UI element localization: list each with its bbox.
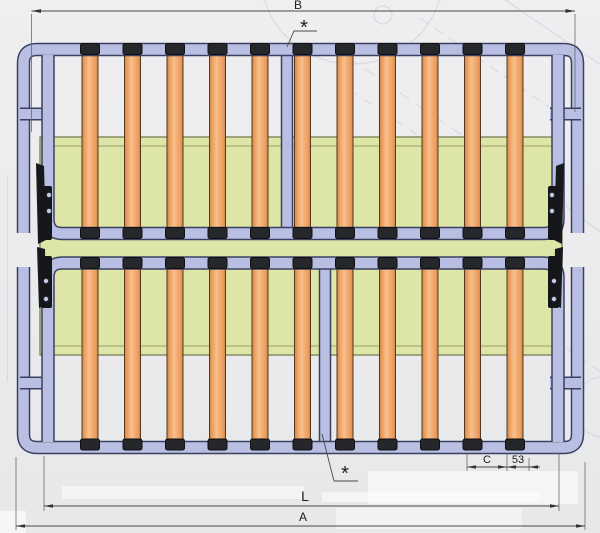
dimension-l-label: L — [301, 488, 309, 504]
hinge-left-bottom — [37, 247, 52, 308]
dimension-b-label: B — [294, 0, 302, 12]
asterisk-top-label: * — [300, 17, 308, 39]
slat — [295, 46, 311, 236]
slat — [337, 260, 353, 450]
drawing-canvas: B * * C 53 L A — [0, 0, 600, 533]
slat — [210, 260, 226, 450]
slat — [125, 260, 141, 450]
slat — [82, 46, 98, 236]
screw-icon — [549, 192, 554, 197]
dimension-c-label: C — [483, 454, 491, 466]
slat — [295, 260, 311, 450]
dimension-a-label: A — [299, 510, 307, 524]
screw-icon — [551, 278, 556, 283]
slat — [167, 46, 183, 236]
slat — [380, 46, 396, 236]
slat — [380, 260, 396, 450]
slat — [507, 260, 523, 450]
screw-icon — [46, 192, 51, 197]
slat — [82, 260, 98, 450]
screw-icon — [43, 296, 48, 301]
slat — [465, 46, 481, 236]
slat — [507, 46, 523, 236]
asterisk-bottom-label: * — [341, 463, 349, 485]
dimension-53-label: 53 — [512, 454, 524, 466]
slat — [167, 260, 183, 450]
slat — [125, 46, 141, 236]
screw-icon — [43, 278, 48, 283]
slat — [210, 46, 226, 236]
bed-frame-diagram: B * * C 53 L A — [0, 0, 600, 533]
screw-icon — [46, 208, 51, 213]
slat — [422, 46, 438, 236]
slat — [465, 260, 481, 450]
screw-icon — [549, 208, 554, 213]
slat — [252, 260, 268, 450]
hinge-right-bottom — [548, 247, 563, 308]
slat — [422, 260, 438, 450]
slat — [337, 46, 353, 236]
slat — [252, 46, 268, 236]
screw-icon — [551, 296, 556, 301]
